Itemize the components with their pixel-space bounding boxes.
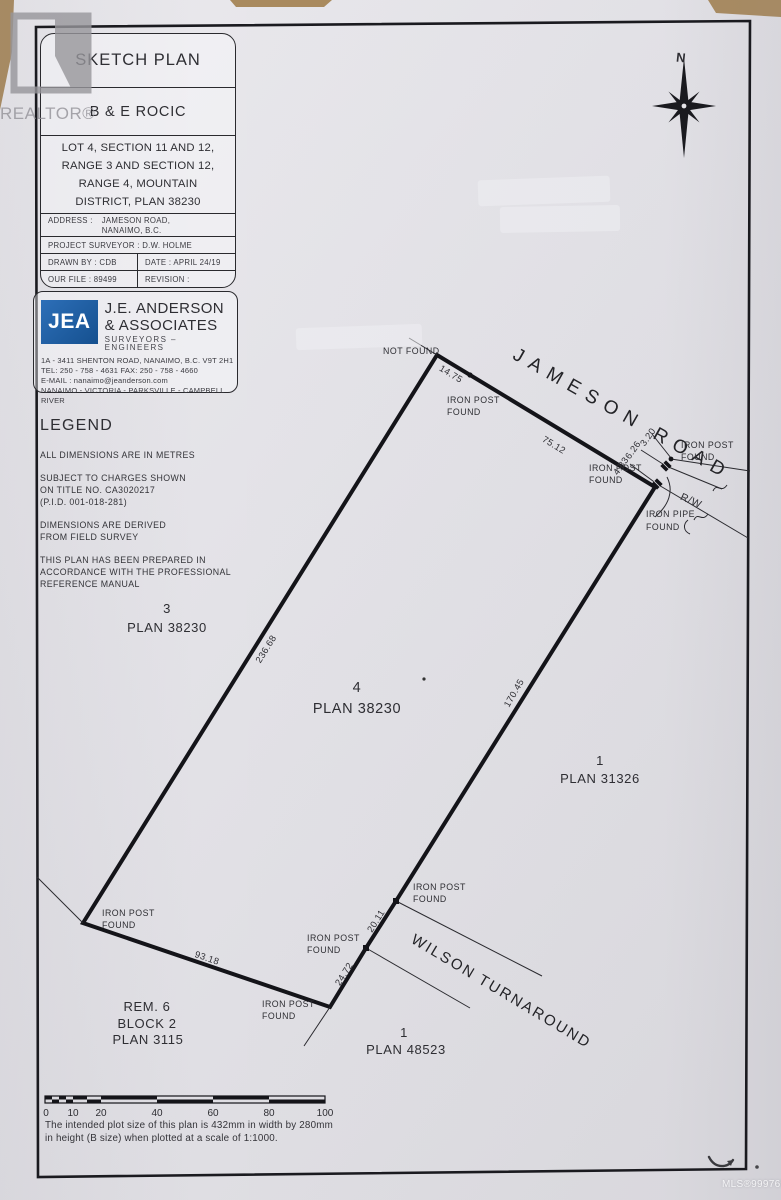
scale-tick-20: 20 (95, 1108, 107, 1119)
svg-text:FOUND: FOUND (102, 920, 136, 930)
legend-note-4: THIS PLAN HAS BEEN PREPARED IN ACCORDANC… (40, 554, 270, 590)
legend-note-3: DIMENSIONS ARE DERIVED FROM FIELD SURVEY (40, 519, 270, 543)
svg-text:IRON POST: IRON POST (589, 463, 642, 473)
file-number: OUR FILE : 89499 (41, 271, 138, 288)
scale-tick-60: 60 (207, 1108, 219, 1119)
realtor-logo-r (55, 18, 86, 88)
svg-text:IRON PIPE: IRON PIPE (646, 509, 695, 519)
lot3-number: 3 (163, 601, 171, 616)
firm-offices: NANAIMO - VICTORIA - PARKSVILLE - CAMPBE… (41, 386, 237, 406)
scale-tick-80: 80 (263, 1108, 275, 1119)
rem6-line1: REM. 6 (124, 999, 171, 1014)
svg-text:IRON POST: IRON POST (447, 395, 500, 405)
lot1-south-plan: PLAN 48523 (366, 1042, 446, 1057)
rem6-line2: BLOCK 2 (117, 1016, 176, 1031)
svg-text:FOUND: FOUND (681, 452, 715, 462)
legend-note-2: SUBJECT TO CHARGES SHOWN ON TITLE NO. CA… (40, 472, 270, 508)
file-revision-row: OUR FILE : 89499 REVISION : (41, 271, 235, 288)
lot4-point (422, 677, 425, 680)
lot1-east-plan: PLAN 31326 (560, 771, 640, 786)
firm-phone: TEL: 250 - 758 - 4631 FAX: 250 - 758 - 4… (41, 366, 237, 376)
jea-logo: JEA (41, 300, 98, 344)
address-value: JAMESON ROAD, NANAIMO, B.C. (102, 216, 170, 236)
surveyor-row: PROJECT SURVEYOR : D.W. HOLME (41, 237, 235, 254)
revision: REVISION : (138, 271, 190, 288)
svg-text:FOUND: FOUND (307, 945, 341, 955)
realtor-watermark: REALTOR® (0, 8, 120, 118)
whiteout-patch (478, 176, 611, 207)
legal-description: LOT 4, SECTION 11 AND 12, RANGE 3 AND SE… (41, 136, 235, 214)
lot1-east-number: 1 (596, 753, 604, 768)
firm-email: E-MAIL : nanaimo@jeanderson.com (41, 376, 237, 386)
scale-tick-0: 0 (43, 1108, 49, 1119)
pen-dot (755, 1165, 759, 1169)
iron-post-dot-road (467, 372, 472, 377)
svg-text:IRON POST: IRON POST (307, 933, 360, 943)
north-label: N (675, 50, 686, 66)
svg-text:FOUND: FOUND (413, 894, 447, 904)
firm-address: 1A - 3411 SHENTON ROAD, NANAIMO, B.C. V9… (41, 356, 237, 366)
drawn-by: DRAWN BY : CDB (41, 254, 138, 270)
svg-text:IRON POST: IRON POST (681, 440, 734, 450)
address-row: ADDRESS : JAMESON ROAD, NANAIMO, B.C. (41, 214, 235, 237)
legend-block: LEGEND ALL DIMENSIONS ARE IN METRES SUBJ… (40, 417, 270, 601)
svg-text:FOUND: FOUND (262, 1011, 296, 1021)
svg-text:IRON POST: IRON POST (413, 882, 466, 892)
scale-note-line2: in height (B size) when plotted at a sca… (45, 1133, 278, 1144)
firm-contact-info: 1A - 3411 SHENTON ROAD, NANAIMO, B.C. V9… (34, 352, 237, 406)
firm-name-line2: & ASSOCIATES (105, 318, 237, 333)
scale-tick-40: 40 (151, 1108, 163, 1119)
realtor-logo-text: REALTOR® (0, 104, 95, 124)
scanned-sketch-plan: N (0, 0, 781, 1200)
lot3-plan: PLAN 38230 (127, 620, 207, 635)
mls-number-watermark: MLS®999769 (722, 1179, 781, 1190)
not-found-label: NOT FOUND (383, 346, 440, 356)
svg-text:FOUND: FOUND (646, 522, 680, 532)
svg-text:IRON POST: IRON POST (102, 908, 155, 918)
rem6-line3: PLAN 3115 (113, 1032, 184, 1047)
whiteout-patch (500, 205, 620, 233)
drawn-date-row: DRAWN BY : CDB DATE : APRIL 24/19 (41, 254, 235, 271)
legend-heading: LEGEND (40, 417, 270, 435)
found-post-tick-v1 (393, 898, 399, 904)
firm-tagline: SURVEYORS – ENGINEERS (105, 336, 237, 352)
scale-note-line1: The intended plot size of this plan is 4… (45, 1120, 333, 1131)
legend-note-1: ALL DIMENSIONS ARE IN METRES (40, 449, 270, 461)
svg-text:FOUND: FOUND (447, 407, 481, 417)
svg-text:FOUND: FOUND (589, 475, 623, 485)
scale-tick-100: 100 (317, 1108, 334, 1119)
lot4-number: 4 (353, 680, 362, 696)
lot4-plan: PLAN 38230 (313, 701, 401, 717)
svg-text:IRON POST: IRON POST (262, 999, 315, 1009)
found-post-tick-v2 (363, 945, 369, 951)
scale-tick-10: 10 (67, 1108, 79, 1119)
address-label: ADDRESS : (48, 216, 93, 236)
iron-post-dot-corner (669, 457, 674, 462)
lot1-south-number: 1 (400, 1025, 408, 1040)
surveyor-firm-block: JEA J.E. ANDERSON & ASSOCIATES SURVEYORS… (33, 291, 238, 393)
firm-name-line1: J.E. ANDERSON (105, 301, 237, 316)
whiteout-patch (296, 324, 423, 350)
date: DATE : APRIL 24/19 (138, 254, 221, 270)
